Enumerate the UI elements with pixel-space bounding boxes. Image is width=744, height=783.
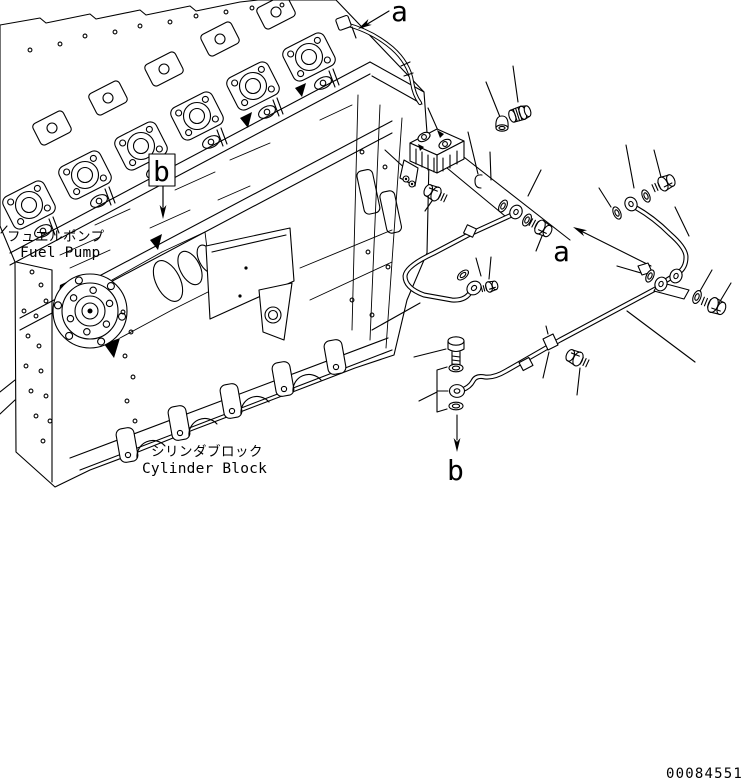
- leader-line: [627, 311, 695, 362]
- part-number: 00084551: [666, 766, 743, 782]
- leader-line: [364, 11, 389, 26]
- washer: [640, 189, 652, 204]
- leader-line: [719, 283, 731, 303]
- label-cylinder-block-jp: シリンダブロック: [151, 443, 263, 460]
- hex-bolt: [529, 218, 554, 238]
- lifting-bracket: [259, 283, 292, 340]
- label-cylinder-block-en: Cylinder Block: [142, 461, 267, 477]
- leader-line: [490, 152, 491, 180]
- bearing-boss: [115, 427, 139, 464]
- leader-line: [536, 236, 542, 251]
- fuel-valve-assembly: [400, 129, 464, 187]
- callout-a-top: a: [391, 0, 408, 28]
- leader-line: [599, 188, 611, 207]
- washer: [449, 402, 463, 410]
- leader-line: [414, 349, 446, 357]
- parts-diagram: a b a b フュエルポンプ Fuel Pump シリンダブロック Cylin…: [0, 0, 744, 783]
- hex-bolt: [652, 173, 677, 192]
- label-fuel-pump-en: Fuel Pump: [20, 245, 100, 261]
- label-fuel-pump-jp: フュエルポンプ: [7, 229, 105, 245]
- rocker-box: [87, 80, 128, 117]
- flange-bolt: [98, 338, 105, 345]
- manifold-flange: [200, 133, 221, 151]
- washer: [456, 268, 471, 282]
- hex-bolt: [701, 296, 727, 316]
- clip: [475, 175, 482, 188]
- bolt-holes: [22, 3, 390, 443]
- leader-line: [543, 352, 549, 378]
- leader-line: [468, 132, 478, 174]
- washer: [611, 206, 623, 221]
- leader-line: [419, 392, 437, 401]
- bearing-boss: [219, 383, 243, 420]
- leader-line: [489, 257, 491, 279]
- shading: [295, 83, 306, 97]
- washer: [497, 199, 510, 214]
- skirt-arch: [189, 419, 217, 436]
- hex-bolt: [422, 183, 447, 202]
- bearing-boss: [271, 361, 295, 398]
- leader-line: [700, 270, 712, 291]
- flange-bolt: [107, 283, 114, 290]
- direction-arrow: [573, 227, 587, 236]
- leader-line: [476, 258, 481, 276]
- leader-line: [528, 170, 541, 196]
- dome-seal: [496, 116, 508, 131]
- callout-a-pipe: a: [553, 235, 570, 268]
- leader-line: [577, 368, 580, 395]
- callout-b-pipe: b: [447, 454, 464, 487]
- leader-line: [372, 303, 420, 330]
- diagram-page: a b a b フュエルポンプ Fuel Pump シリンダブロック Cylin…: [0, 0, 744, 783]
- hex-bolt: [481, 280, 499, 293]
- leader-line: [626, 145, 634, 188]
- leader-line: [617, 266, 641, 273]
- leader-line: [513, 66, 518, 102]
- washer: [691, 289, 703, 304]
- manifold-flange: [256, 103, 277, 121]
- leader-line: [654, 150, 661, 177]
- banjo-fitting: [450, 385, 465, 398]
- manifold-flange: [88, 192, 109, 210]
- fuel-pipe-lower: [458, 286, 661, 391]
- bearing-boss: [323, 339, 347, 376]
- rocker-box: [31, 110, 72, 147]
- fuel-pump: [53, 274, 127, 348]
- manifold-flange: [312, 74, 333, 92]
- annotations: a b a b フュエルポンプ Fuel Pump シリンダブロック Cylin…: [1, 0, 743, 782]
- threaded-plug: [507, 104, 532, 124]
- hose-fitting: [335, 15, 351, 31]
- bearing-boss: [167, 405, 191, 442]
- leader-line: [460, 154, 570, 240]
- flange-bolt: [75, 277, 82, 284]
- hex-bolt: [564, 348, 589, 367]
- skirt-arch: [241, 397, 269, 414]
- rocker-box: [255, 0, 296, 30]
- rocker-box: [143, 51, 184, 88]
- fuel-hose: [335, 15, 420, 103]
- flange-bolt: [54, 302, 61, 309]
- manifold-flanges: [32, 74, 333, 240]
- banjo-bolt-vertical: [448, 337, 464, 366]
- washer: [449, 364, 463, 372]
- fuel-pipe-upper: [405, 213, 516, 300]
- rocker-box: [199, 21, 240, 58]
- leader-line: [581, 231, 651, 266]
- leader-line: [486, 82, 500, 117]
- leader-line: [675, 207, 689, 236]
- direction-arrow: [358, 19, 372, 29]
- flange-bolt: [66, 332, 73, 339]
- callout-b-engine: b: [153, 155, 170, 188]
- side-cover: [379, 190, 402, 234]
- callout-bracket: [437, 367, 448, 412]
